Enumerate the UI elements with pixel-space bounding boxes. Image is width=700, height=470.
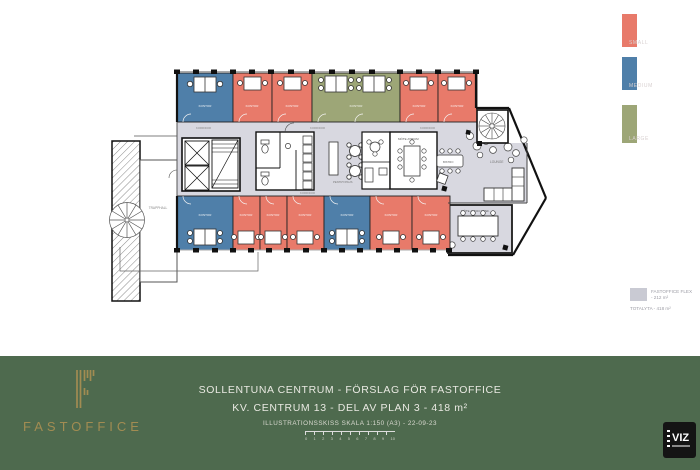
trapphall-label: TRAPPHALL xyxy=(149,206,168,210)
viz-logo-text: VIZ xyxy=(672,432,689,444)
room-label: KONTOR xyxy=(385,213,399,217)
mote-atrium-label: MÖTE ATRIUM xyxy=(398,137,419,141)
floor-plan: TRAPPHALL MÖTE AUDIO KONF. xyxy=(0,0,700,345)
legend-item-small: SMALL xyxy=(622,14,692,47)
pentry-label: PENTRY/PAUS xyxy=(333,180,353,184)
sink xyxy=(285,143,290,148)
room-label: KONTOR xyxy=(246,104,260,108)
scale-tick: 5 xyxy=(348,436,350,441)
scale-bar-ticks xyxy=(305,431,395,435)
korridor-label: KORRIDOR xyxy=(310,126,325,130)
room-label: KONTOR xyxy=(286,104,300,108)
room-label: KONTOR xyxy=(341,213,355,217)
sofa xyxy=(512,168,524,201)
area-legend: FASTOFFICE FLEX - 212 m² TOTALYTA - 418 … xyxy=(630,288,700,311)
scale-tick: 10 xyxy=(390,436,394,441)
spiral-stair-right xyxy=(477,110,508,146)
room-label: KONTOR xyxy=(425,213,439,217)
scale-bar: 0 1 2 3 4 5 6 7 8 9 10 xyxy=(305,431,395,441)
bistro-area: BISTRO xyxy=(437,149,463,173)
scale-tick: 1 xyxy=(314,436,316,441)
room-label: KONTOR xyxy=(199,213,213,217)
phone-copy-block xyxy=(362,132,390,189)
pouf xyxy=(513,150,520,157)
round-table xyxy=(350,166,361,177)
fastoffice-wordmark: FASTOFFICE xyxy=(18,419,148,434)
scale-tick: 6 xyxy=(356,436,358,441)
page: TRAPPHALL MÖTE AUDIO KONF. xyxy=(0,0,700,470)
title-line-2: KV. CENTRUM 13 - DEL AV PLAN 3 - 418 m² xyxy=(160,402,540,414)
scale-tick: 4 xyxy=(339,436,341,441)
meeting-room-atrium: MÖTE ATRIUM xyxy=(390,132,437,189)
pouf xyxy=(508,157,514,163)
scale-tick: 9 xyxy=(382,436,384,441)
korridor-label: KORRIDOR xyxy=(196,126,211,130)
toilet xyxy=(262,177,268,185)
pouf xyxy=(490,147,497,154)
room-label: KONTOR xyxy=(240,213,254,217)
room-label: KONTOR xyxy=(413,104,427,108)
round-table xyxy=(350,146,361,157)
title-line-1: SOLLENTUNA CENTRUM - FÖRSLAG FÖR FASTOFF… xyxy=(160,384,540,396)
scale-bar-numbers: 0 1 2 3 4 5 6 7 8 9 10 xyxy=(305,436,395,441)
fastoffice-logo-mark xyxy=(63,368,103,410)
pouf xyxy=(477,152,483,158)
elevator-core xyxy=(182,138,240,191)
lounge-label: LOUNGE xyxy=(490,160,503,164)
size-legend: SMALL MEDIUM LARGE xyxy=(622,14,692,143)
room-label: KONTOR xyxy=(199,104,213,108)
room-label: KONTOR xyxy=(451,104,465,108)
viz-logo-dashes xyxy=(667,430,670,450)
large-label: LARGE xyxy=(629,136,649,142)
korridor-label: KORRIDOR xyxy=(420,126,435,130)
small-label: SMALL xyxy=(629,40,648,46)
meeting-room-konf: MÖTE AUDIO KONF. xyxy=(448,205,512,253)
room-label: KONTOR xyxy=(350,104,364,108)
scale-tick: 7 xyxy=(365,436,367,441)
scale-tick: 0 xyxy=(305,436,307,441)
counter xyxy=(365,168,373,182)
wc-core xyxy=(256,123,314,190)
legend-item-medium: MEDIUM xyxy=(622,57,692,90)
korridor-label: KORRIDOR xyxy=(300,191,315,195)
pouf xyxy=(504,143,512,151)
footer-band: FASTOFFICE SOLLENTUNA CENTRUM - FÖRSLAG … xyxy=(0,356,700,470)
flex-area: - 212 m² xyxy=(651,295,692,301)
scale-tick: 3 xyxy=(331,436,333,441)
title-line-3: ILLUSTRATIONSSKISS SKALA 1:150 (A3) - 22… xyxy=(160,420,540,427)
legend-item-large: LARGE xyxy=(622,105,692,143)
stair-hall: TRAPPHALL xyxy=(140,160,177,282)
toilet xyxy=(262,145,268,153)
viz-logo-subline xyxy=(672,445,690,447)
copier xyxy=(379,168,387,175)
drawing-titles: SOLLENTUNA CENTRUM - FÖRSLAG FÖR FASTOFF… xyxy=(160,384,540,441)
kitchen-island xyxy=(329,142,338,175)
spiral-stair-left xyxy=(110,203,145,238)
fastoffice-logo: FASTOFFICE xyxy=(18,368,148,434)
round-table xyxy=(370,142,380,152)
room-label: KONTOR xyxy=(267,213,281,217)
viz-logo: VIZ xyxy=(663,422,696,458)
flex-swatch xyxy=(630,288,647,301)
room-label: KONTOR xyxy=(299,213,313,217)
plant xyxy=(521,137,527,143)
scale-tick: 8 xyxy=(373,436,375,441)
medium-label: MEDIUM xyxy=(629,83,653,89)
total-area: TOTALYTA - 418 m² xyxy=(630,306,700,311)
scale-tick: 2 xyxy=(322,436,324,441)
bistro-label: BISTRO xyxy=(443,160,454,164)
